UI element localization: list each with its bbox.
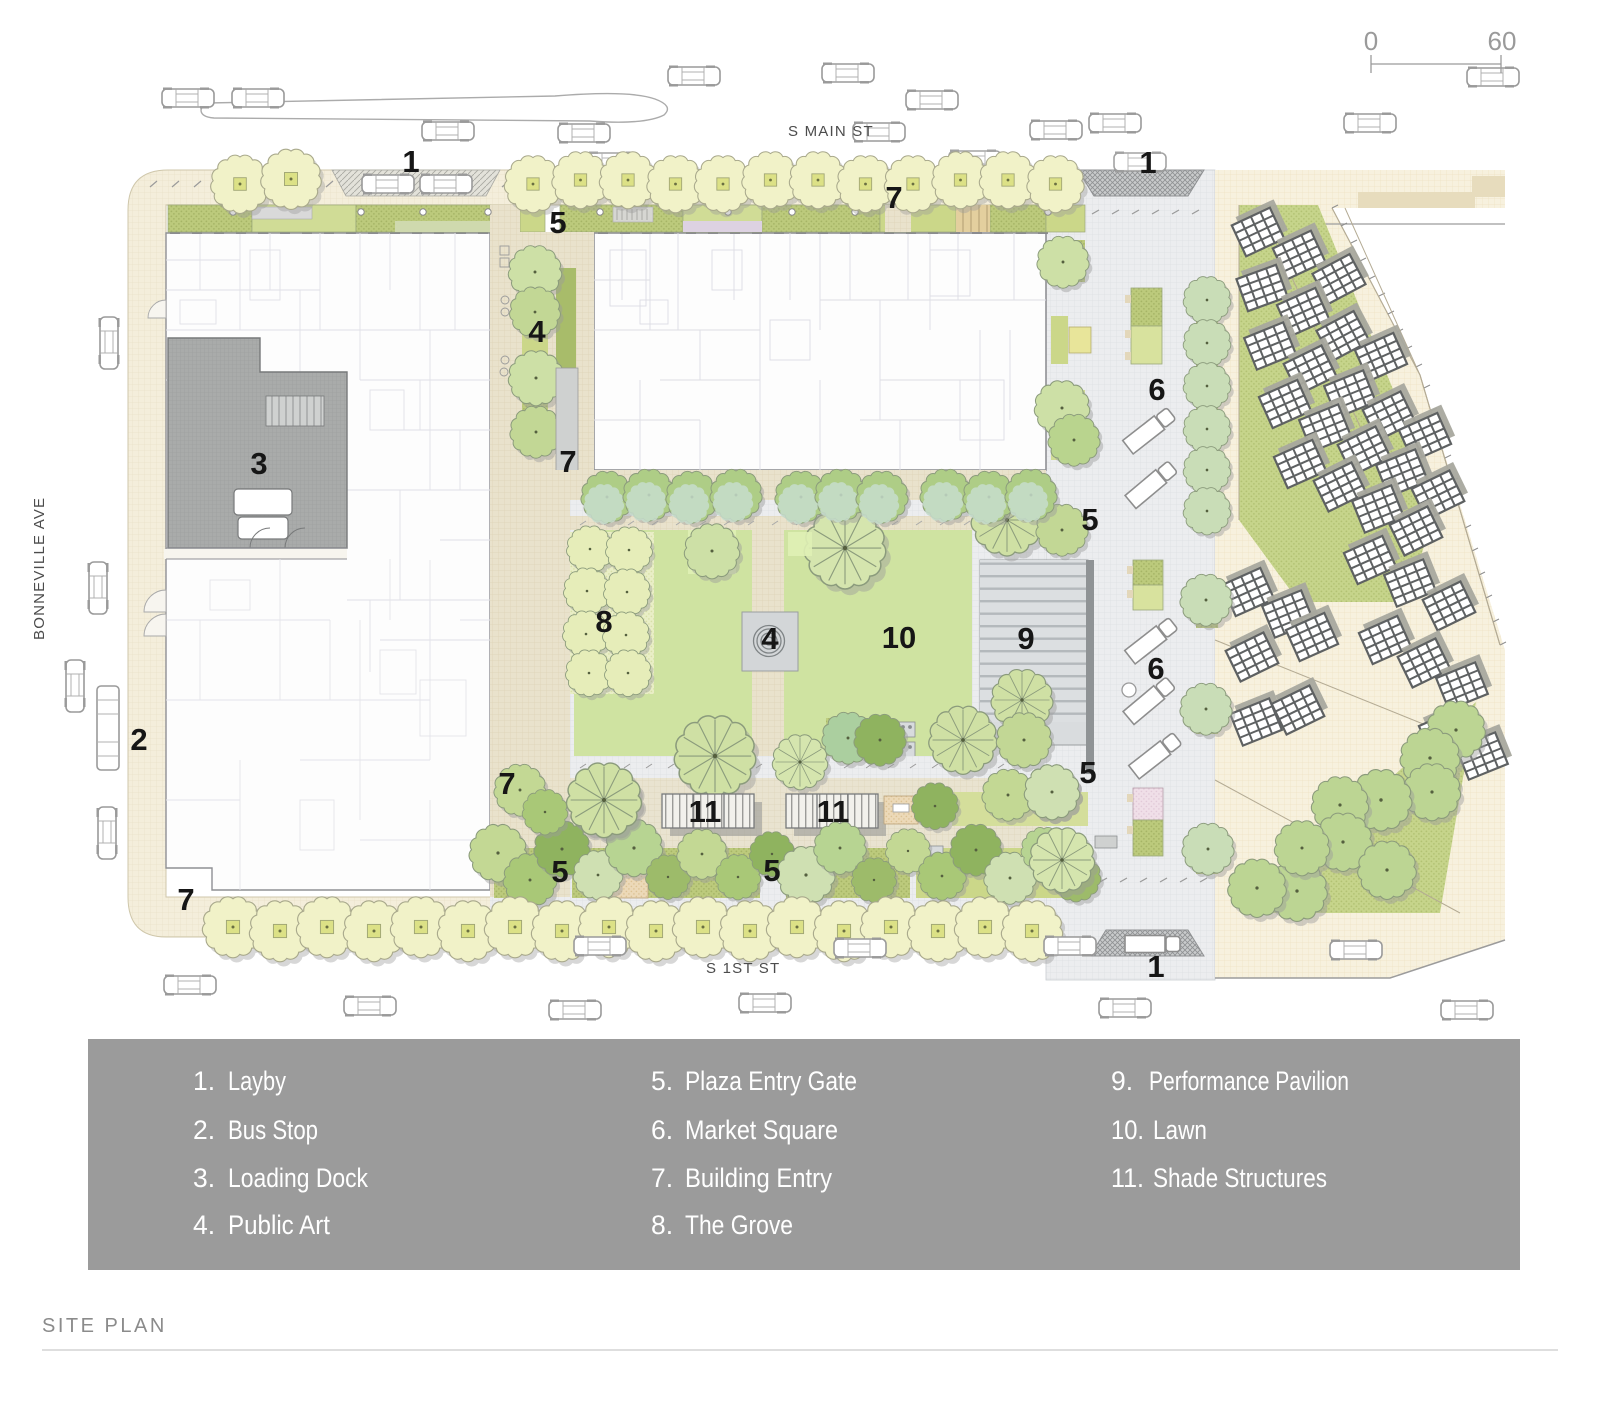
svg-text:2.: 2. xyxy=(193,1115,215,1145)
svg-text:11: 11 xyxy=(689,794,722,829)
svg-text:BONNEVILLE AVE: BONNEVILLE AVE xyxy=(31,497,48,640)
svg-text:4.: 4. xyxy=(193,1210,215,1240)
svg-text:0: 0 xyxy=(1364,26,1378,56)
svg-text:Loading Dock: Loading Dock xyxy=(228,1163,369,1193)
svg-text:10.: 10. xyxy=(1111,1115,1144,1145)
svg-text:7.: 7. xyxy=(651,1163,673,1193)
svg-text:3: 3 xyxy=(250,446,267,481)
svg-text:9: 9 xyxy=(1017,621,1034,656)
svg-text:6.: 6. xyxy=(651,1115,673,1145)
svg-text:3.: 3. xyxy=(193,1163,215,1193)
svg-text:Building Entry: Building Entry xyxy=(685,1163,833,1193)
svg-text:The Grove: The Grove xyxy=(685,1210,793,1240)
svg-text:5.: 5. xyxy=(651,1066,673,1096)
svg-text:8.: 8. xyxy=(651,1210,673,1240)
svg-text:5: 5 xyxy=(1081,502,1098,537)
svg-text:Lawn: Lawn xyxy=(1153,1115,1207,1145)
svg-text:9.: 9. xyxy=(1111,1066,1133,1096)
svg-text:1.: 1. xyxy=(193,1066,215,1096)
svg-text:7: 7 xyxy=(177,882,194,917)
svg-text:7: 7 xyxy=(885,180,902,215)
svg-text:6: 6 xyxy=(1148,372,1165,407)
svg-text:S MAIN ST: S MAIN ST xyxy=(788,123,874,140)
svg-text:7: 7 xyxy=(498,766,515,801)
svg-text:1: 1 xyxy=(1147,949,1164,984)
svg-text:SITE PLAN: SITE PLAN xyxy=(42,1315,167,1337)
svg-text:Shade Structures: Shade Structures xyxy=(1153,1163,1327,1193)
svg-text:5: 5 xyxy=(1079,755,1096,790)
svg-text:Market Square: Market Square xyxy=(685,1115,838,1145)
svg-text:5: 5 xyxy=(763,853,780,888)
svg-text:60: 60 xyxy=(1488,26,1517,56)
svg-text:S 1ST ST: S 1ST ST xyxy=(706,960,780,977)
svg-text:11: 11 xyxy=(817,794,850,829)
svg-text:5: 5 xyxy=(551,854,568,889)
svg-text:8: 8 xyxy=(595,604,612,639)
svg-text:Public Art: Public Art xyxy=(228,1210,331,1240)
svg-text:4: 4 xyxy=(761,621,779,656)
svg-text:Performance Pavilion: Performance Pavilion xyxy=(1149,1066,1349,1096)
svg-text:6: 6 xyxy=(1147,651,1164,686)
svg-text:1: 1 xyxy=(402,144,419,179)
svg-text:2: 2 xyxy=(130,722,147,757)
svg-text:5: 5 xyxy=(549,205,566,240)
svg-text:11.: 11. xyxy=(1111,1163,1144,1193)
svg-text:10: 10 xyxy=(882,620,916,655)
svg-text:7: 7 xyxy=(559,444,576,479)
svg-text:Layby: Layby xyxy=(228,1066,287,1096)
svg-text:Bus Stop: Bus Stop xyxy=(228,1115,318,1145)
svg-text:1: 1 xyxy=(1139,145,1156,180)
svg-text:4: 4 xyxy=(528,314,546,349)
svg-text:Plaza Entry Gate: Plaza Entry Gate xyxy=(685,1066,857,1096)
